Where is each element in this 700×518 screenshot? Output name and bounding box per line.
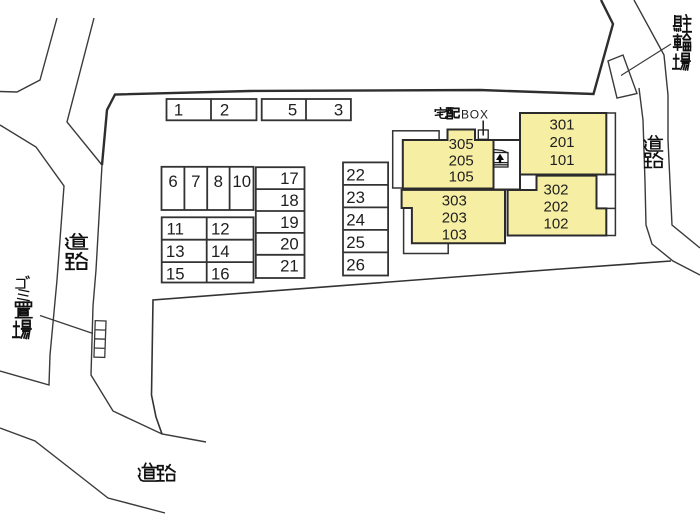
svg-text:6: 6 [168, 172, 177, 191]
svg-text:15: 15 [166, 264, 185, 283]
svg-text:103: 103 [442, 227, 467, 244]
svg-text:301: 301 [549, 117, 574, 134]
svg-text:11: 11 [166, 220, 183, 239]
svg-text:24: 24 [346, 210, 365, 229]
svg-text:13: 13 [166, 242, 185, 261]
svg-text:20: 20 [280, 235, 299, 254]
svg-text:303: 303 [442, 193, 467, 210]
svg-text:201: 201 [549, 134, 574, 151]
svg-text:18: 18 [280, 191, 299, 210]
svg-text:7: 7 [191, 172, 200, 191]
svg-text:25: 25 [346, 233, 365, 252]
svg-text:14: 14 [211, 242, 230, 261]
svg-text:19: 19 [280, 213, 299, 232]
svg-text:10: 10 [232, 172, 251, 191]
svg-text:305: 305 [449, 136, 474, 153]
svg-text:2: 2 [220, 101, 229, 120]
svg-text:102: 102 [543, 215, 568, 232]
svg-text:17: 17 [280, 169, 299, 188]
svg-text:BOX: BOX [461, 107, 489, 121]
svg-text:205: 205 [449, 152, 474, 169]
svg-text:16: 16 [211, 264, 230, 283]
svg-text:1: 1 [174, 101, 183, 120]
svg-text:202: 202 [543, 198, 568, 215]
svg-text:5: 5 [288, 100, 297, 119]
svg-text:302: 302 [543, 182, 568, 199]
svg-text:22: 22 [346, 165, 365, 184]
svg-text:26: 26 [346, 255, 365, 274]
svg-text:3: 3 [334, 100, 343, 119]
svg-text:23: 23 [346, 188, 365, 207]
svg-text:101: 101 [549, 152, 574, 169]
svg-text:12: 12 [211, 220, 230, 239]
svg-text:105: 105 [449, 168, 474, 185]
svg-text:203: 203 [442, 209, 467, 226]
svg-text:8: 8 [214, 172, 223, 191]
svg-text:21: 21 [280, 257, 299, 276]
